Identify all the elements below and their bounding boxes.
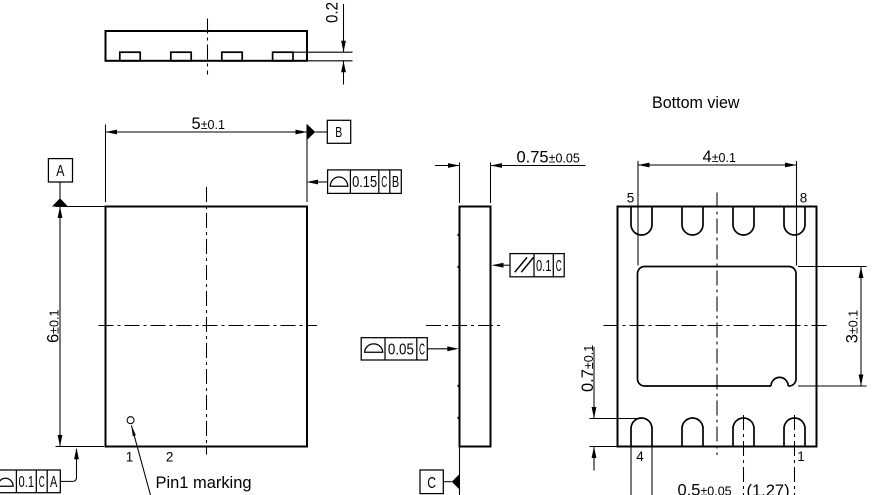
- svg-text:B: B: [392, 174, 399, 191]
- svg-text:Bottom view: Bottom view: [652, 93, 740, 112]
- svg-text:0.1: 0.1: [536, 258, 552, 275]
- svg-text:B: B: [335, 125, 342, 141]
- svg-text:A: A: [50, 474, 58, 491]
- svg-text:A: A: [56, 163, 65, 180]
- svg-text:0.15: 0.15: [352, 174, 377, 191]
- svg-text:5±0.1: 5±0.1: [192, 115, 225, 133]
- svg-text:3±0.1: 3±0.1: [844, 310, 862, 343]
- svg-text:4±0.1: 4±0.1: [703, 148, 736, 166]
- svg-text:6±0.1: 6±0.1: [45, 310, 63, 343]
- svg-text:5: 5: [627, 191, 635, 206]
- svg-text:0.05: 0.05: [388, 341, 414, 358]
- svg-text:1: 1: [797, 449, 805, 464]
- svg-text:2: 2: [166, 450, 174, 465]
- svg-text:0.1: 0.1: [19, 474, 35, 491]
- svg-text:C: C: [419, 341, 425, 358]
- svg-text:0.7±0.1: 0.7±0.1: [579, 345, 597, 392]
- svg-text:0.2: 0.2: [324, 2, 342, 23]
- svg-text:8: 8: [800, 191, 808, 206]
- svg-text:C: C: [381, 174, 387, 191]
- svg-text:4: 4: [636, 449, 644, 464]
- svg-text:C: C: [427, 475, 436, 492]
- svg-text:0.75±0.05: 0.75±0.05: [517, 149, 580, 167]
- svg-text:0.5±0.05: 0.5±0.05: [678, 482, 732, 495]
- svg-text:1: 1: [126, 450, 134, 465]
- svg-text:Pin1 marking: Pin1 marking: [156, 473, 252, 492]
- svg-text:C: C: [556, 258, 562, 275]
- svg-text:C: C: [39, 474, 45, 491]
- svg-text:(1.27): (1.27): [747, 482, 790, 495]
